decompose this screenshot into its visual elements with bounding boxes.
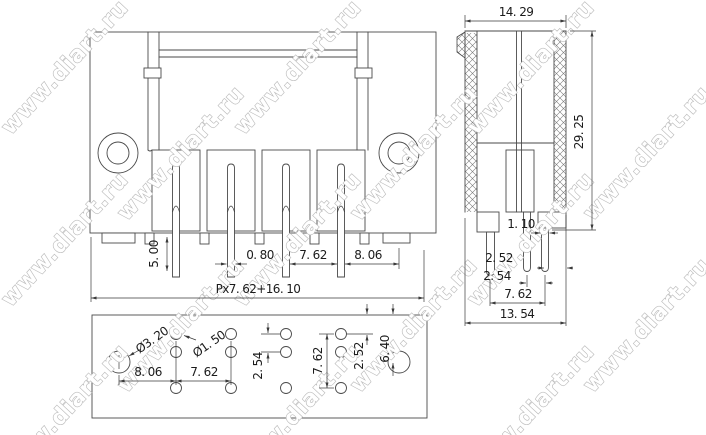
side-dim-depth: 13. 54	[500, 307, 535, 321]
technical-drawing-page: www.diart.ru www.diart.ru www.diart.ru w…	[0, 0, 706, 435]
bottom-dim-mount-to-pin: 8. 06	[134, 365, 162, 379]
watermark-text: www.diart.ru	[0, 0, 134, 140]
bottom-dim-row-span: 7. 62	[311, 347, 325, 375]
front-dim-total-width: Px7. 62+16. 10	[216, 282, 301, 296]
left-latch-tab	[144, 68, 161, 78]
watermark-text: www.diart.ru	[346, 81, 483, 226]
front-dim-pin-length: 5. 00	[147, 240, 161, 268]
right-latch-tab	[355, 68, 372, 78]
side-foot-front	[477, 212, 499, 232]
front-view	[90, 32, 436, 277]
watermark-text: www.diart.ru	[230, 0, 367, 140]
front-dim-pin-width: 0. 80	[246, 248, 274, 262]
watermark-text: www.diart.ru	[579, 81, 706, 226]
front-dim-pin-to-mount: 8. 06	[354, 248, 382, 262]
bottom-dim-pin-hole-dia: Ø1. 50	[190, 328, 228, 360]
side-dim-pin-gap: 2. 54	[483, 269, 511, 283]
bottom-dim-edge-to-row: 2. 52	[352, 342, 366, 370]
bottom-dim-row-gap: 2. 54	[251, 352, 265, 380]
mounting-hole-left	[98, 133, 138, 173]
side-latch	[457, 32, 465, 58]
bottom-dim-pitch: 7. 62	[190, 365, 218, 379]
drawing-canvas: www.diart.ru www.diart.ru www.diart.ru w…	[0, 0, 706, 435]
pin-holder-block	[506, 150, 534, 212]
watermark-text: www.diart.ru	[346, 253, 483, 398]
bottom-dim-edge-to-mount: 6. 40	[378, 335, 392, 363]
watermark-text: www.diart.ru	[0, 339, 134, 435]
side-dim-pin-thickness: 1. 10	[507, 217, 535, 231]
side-dim-pin-span: 7. 62	[504, 287, 532, 301]
side-dim-height: 29. 25	[572, 115, 586, 150]
watermark-text: www.diart.ru	[463, 339, 600, 435]
side-view	[457, 31, 566, 276]
watermark-text: www.diart.ru	[579, 253, 706, 398]
side-dim-pin-to-back: 2. 52	[485, 251, 513, 265]
front-dim-pitch: 7. 62	[299, 248, 327, 262]
side-dim-width: 14. 29	[499, 5, 534, 19]
